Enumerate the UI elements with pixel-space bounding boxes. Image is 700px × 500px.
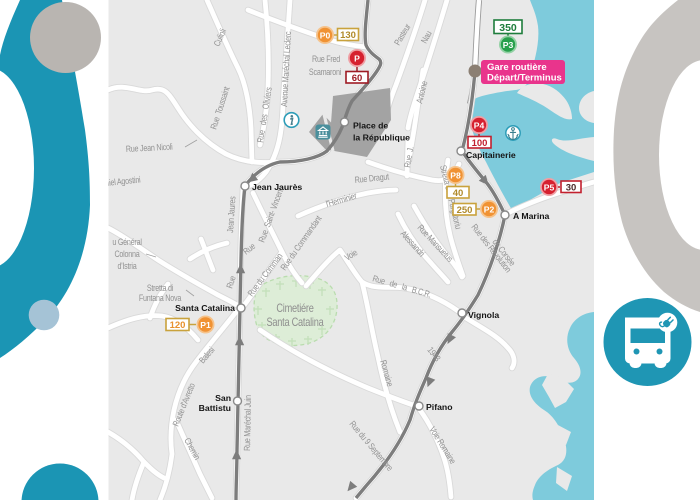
svg-text:250: 250 (457, 205, 473, 216)
svg-text:P1: P1 (200, 320, 211, 330)
svg-text:P: P (354, 53, 360, 63)
svg-text:P4: P4 (474, 120, 485, 130)
svg-text:Rue Maréchal Juin: Rue Maréchal Juin (242, 395, 253, 451)
svg-text:Vignola: Vignola (468, 310, 499, 320)
svg-text:la République: la République (353, 133, 410, 143)
svg-text:P3: P3 (503, 40, 514, 50)
svg-text:Pifano: Pifano (426, 402, 453, 412)
svg-text:130: 130 (340, 30, 356, 41)
svg-text:u Général: u Général (112, 237, 142, 247)
svg-text:Rue Fred: Rue Fred (312, 54, 340, 64)
svg-text:30: 30 (566, 183, 577, 194)
svg-text:Place de: Place de (353, 121, 388, 131)
svg-text:Stretta di: Stretta di (147, 283, 174, 293)
svg-text:Capitainerie: Capitainerie (466, 150, 516, 160)
svg-text:San: San (215, 393, 231, 403)
svg-text:120: 120 (170, 320, 186, 331)
svg-text:A Marina: A Marina (513, 211, 550, 221)
svg-text:100: 100 (472, 138, 488, 149)
svg-text:40: 40 (453, 188, 464, 199)
svg-text:P0: P0 (320, 30, 331, 40)
svg-text:P2: P2 (484, 204, 495, 214)
svg-text:Funtana Nova: Funtana Nova (139, 293, 182, 303)
svg-text:Santa Catalina: Santa Catalina (175, 303, 235, 313)
svg-text:Scamaroni: Scamaroni (309, 67, 342, 77)
svg-text:Battistu: Battistu (199, 403, 231, 413)
svg-text:P5: P5 (544, 182, 555, 192)
svg-text:d'Istria: d'Istria (117, 261, 137, 271)
svg-text:Santa Catalina: Santa Catalina (267, 317, 324, 329)
svg-text:60: 60 (352, 73, 363, 84)
svg-text:Colonna: Colonna (114, 249, 140, 259)
svg-text:Cimetiére: Cimetiére (276, 303, 314, 315)
svg-text:Départ/Terminus: Départ/Terminus (487, 73, 562, 84)
svg-text:Gare routière: Gare routière (487, 62, 547, 73)
svg-text:350: 350 (499, 22, 517, 34)
svg-text:P8: P8 (450, 170, 461, 180)
svg-text:Jean Jaurès: Jean Jaurès (252, 182, 302, 192)
